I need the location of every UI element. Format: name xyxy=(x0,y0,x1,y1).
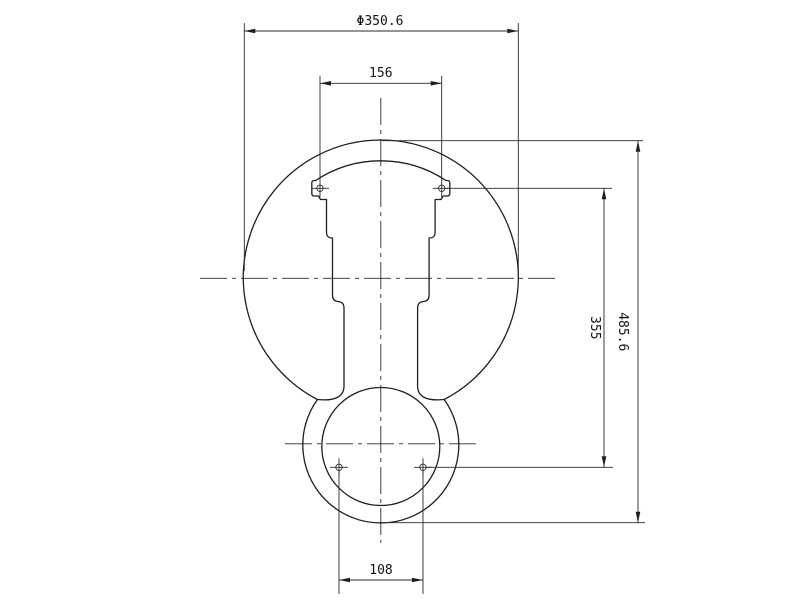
arrowhead-top xyxy=(602,188,607,199)
dim-label-lower-hole-spacing: 108 xyxy=(369,563,392,578)
centerlines xyxy=(200,98,560,543)
engineering-drawing: Φ350.6 156 355 485.6 108 xyxy=(0,0,800,600)
left-profile xyxy=(312,181,344,400)
upper-left-hole xyxy=(311,179,329,197)
arrowhead-bottom xyxy=(602,456,607,467)
drawing-canvas: Φ350.6 156 355 485.6 108 xyxy=(0,0,800,600)
arrowhead-top xyxy=(636,141,641,152)
dimension-hole-row-distance: 355 xyxy=(427,188,613,467)
right-profile xyxy=(418,181,450,400)
arrowhead-left xyxy=(244,29,255,34)
arrowhead-left xyxy=(320,81,331,86)
dim-label-overall-height: 485.6 xyxy=(615,312,630,351)
dim-label-upper-hole-spacing: 156 xyxy=(369,66,392,81)
dimension-top-diameter: Φ350.6 xyxy=(244,14,518,271)
arrowhead-left xyxy=(339,578,350,583)
arrowhead-right xyxy=(507,29,518,34)
dim-label-hole-row-distance: 355 xyxy=(587,316,602,339)
arrowhead-right xyxy=(412,578,423,583)
arrowhead-bottom xyxy=(636,512,641,523)
dim-label-top-diameter: Φ350.6 xyxy=(357,14,404,29)
arrowhead-right xyxy=(431,81,442,86)
